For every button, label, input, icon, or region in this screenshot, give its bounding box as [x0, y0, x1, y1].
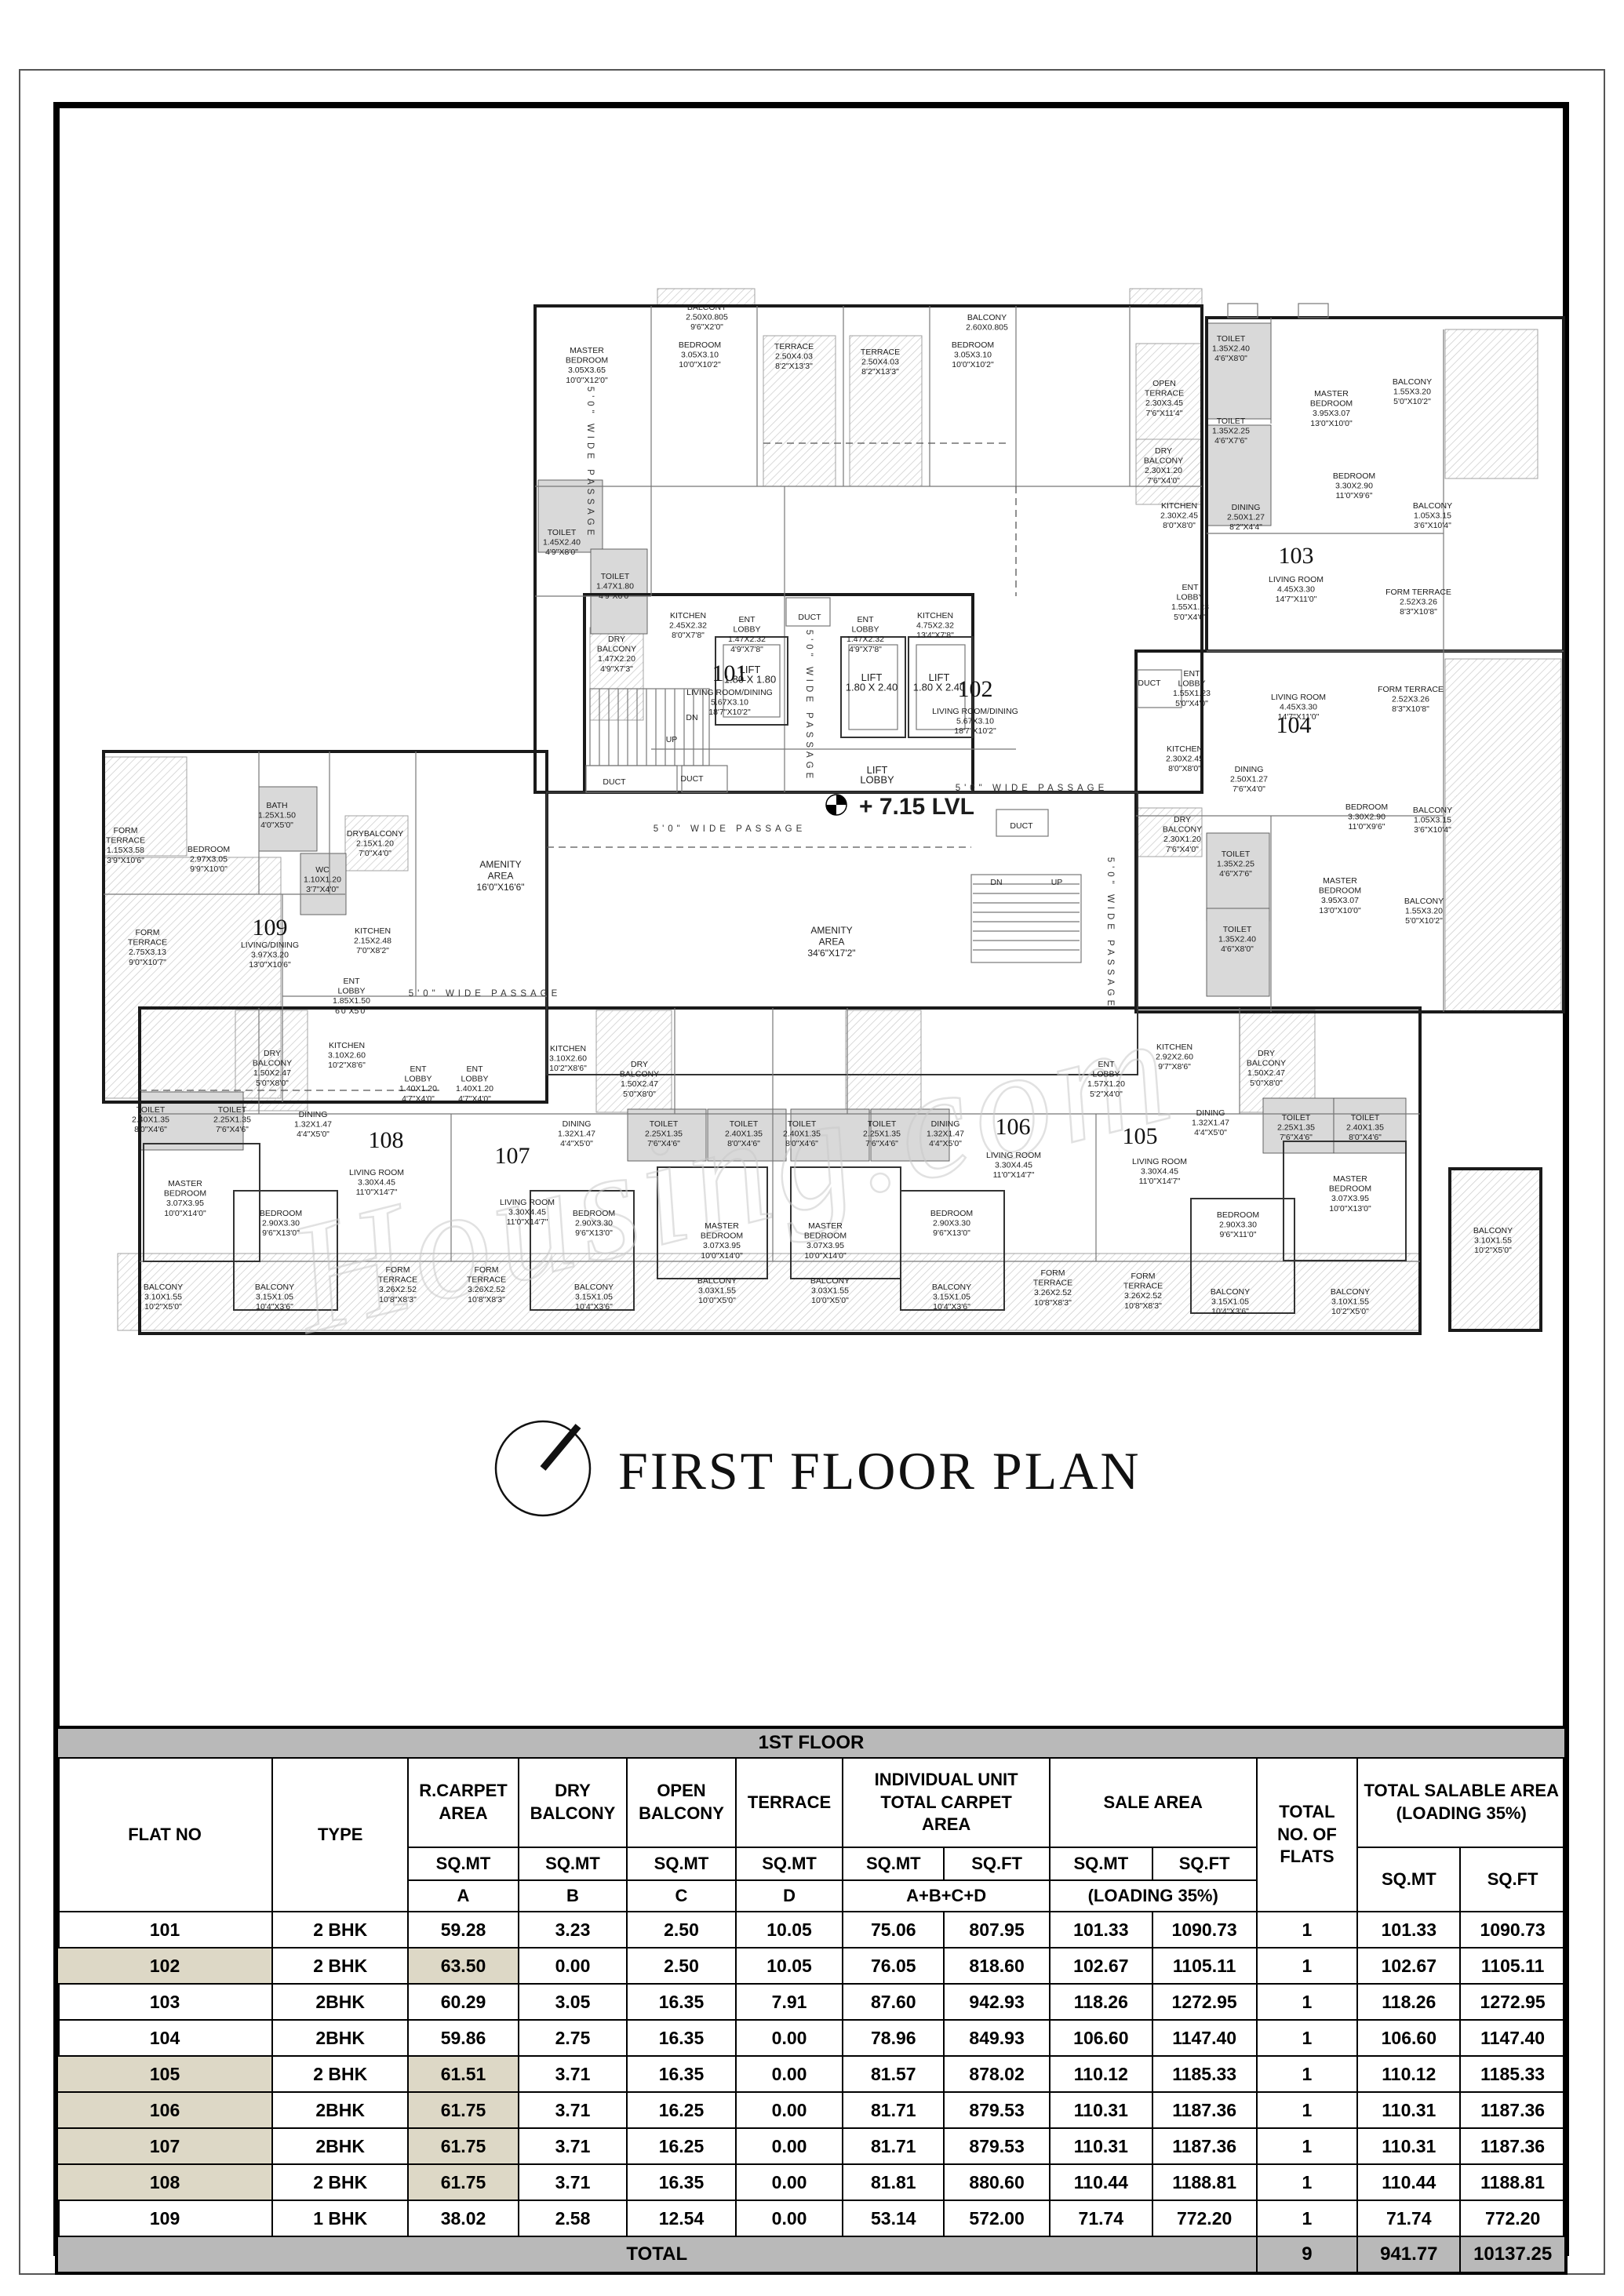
- value-cell: 0.00: [736, 2128, 843, 2164]
- total-label: TOTAL: [56, 2236, 1257, 2273]
- value-cell: 2.50: [627, 1948, 736, 1984]
- table-row-flat-109: 1091 BHK38.022.5812.540.0053.14572.0071.…: [56, 2200, 1566, 2236]
- type-cell: 2 BHK: [272, 2056, 408, 2092]
- level-label: + 7.15 LVL: [859, 794, 974, 820]
- unit-label: SQ.MT: [736, 1847, 843, 1880]
- room-label: BALCONY3.15X1.0510'4"X3'6": [574, 1283, 614, 1312]
- unit-label: SQ.FT: [1460, 1847, 1566, 1912]
- unit-label: SQ.MT: [627, 1847, 736, 1880]
- room-label: 5'0" WIDE PASSAGE: [1105, 857, 1115, 1010]
- room-label: BEDROOM3.30X2.9011'0"X9'6": [1333, 471, 1375, 500]
- unit-label: SQ.FT: [944, 1847, 1050, 1880]
- col-total-flats: TOTAL NO. OF FLATS: [1257, 1758, 1358, 1912]
- room-label: BEDROOM3.30X2.9011'0"X9'6": [1345, 802, 1388, 831]
- room-label: DINING1.32X1.474'4"X5'0": [1192, 1108, 1229, 1137]
- unit-107-label: 107: [495, 1143, 530, 1169]
- room-label: MASTERBEDROOM3.07X3.9510'0"X13'0": [1329, 1174, 1371, 1213]
- room-label: DUCT: [1138, 679, 1161, 688]
- unit-106-label: 106: [996, 1114, 1031, 1140]
- value-cell: 2.58: [519, 2200, 628, 2236]
- type-cell: 2BHK: [272, 1984, 408, 2020]
- room-label: BEDROOM2.90X3.309'6"X13'0": [930, 1209, 973, 1238]
- room-label: 5'0" WIDE PASSAGE: [654, 824, 807, 834]
- value-cell: 16.35: [627, 2164, 736, 2200]
- value-cell: 3.71: [519, 2092, 628, 2128]
- flat-no-cell: 103: [56, 1984, 272, 2020]
- value-cell: 1: [1257, 1912, 1358, 1948]
- unit-105-label: 105: [1123, 1123, 1158, 1149]
- room-label: ENTLOBBY1.40X1.204'7"X4'0": [456, 1064, 493, 1104]
- value-cell: 1090.73: [1152, 1912, 1257, 1948]
- room-label: LIVING ROOM3.30X4.4511'0"X14'7": [1132, 1157, 1187, 1186]
- room-label: BALCONY1.05X3.153'6"X10'4": [1413, 501, 1452, 530]
- room-label: DINING2.50X1.277'6"X4'0": [1230, 765, 1268, 794]
- value-cell: 572.00: [944, 2200, 1050, 2236]
- room-label: BALCONY3.15X1.0510'4"X3'6": [255, 1283, 294, 1312]
- floor-title-row: 1ST FLOOR: [56, 1727, 1566, 1758]
- value-cell: 102.67: [1050, 1948, 1152, 1984]
- room-label: ENTLOBBY1.47X2.324'9"X7'8": [728, 615, 766, 654]
- type-cell: 2BHK: [272, 2020, 408, 2056]
- unit-label: SQ.MT: [519, 1847, 628, 1880]
- value-cell: 110.31: [1050, 2092, 1152, 2128]
- room-label: BALCONY3.10X1.5510'2"X5'0": [144, 1283, 183, 1312]
- value-cell: 87.60: [843, 1984, 944, 2020]
- table-row-flat-104: 1042BHK59.862.7516.350.0078.96849.93106.…: [56, 2020, 1566, 2056]
- room-label: KITCHEN2.30X2.458'0"X8'0": [1160, 501, 1198, 530]
- room-label: 5'0" WIDE PASSAGE: [804, 630, 814, 783]
- flat-no-cell: 104: [56, 2020, 272, 2056]
- value-cell: 0.00: [736, 2200, 843, 2236]
- type-cell: 1 BHK: [272, 2200, 408, 2236]
- value-cell: 772.20: [1152, 2200, 1257, 2236]
- total-sqft: 10137.25: [1460, 2236, 1566, 2273]
- lift-2-label: LIFT1.80 X 2.40: [846, 671, 898, 693]
- room-label: TOILET2.40X1.358'0"X4'6": [783, 1119, 821, 1148]
- value-cell: 1105.11: [1152, 1948, 1257, 1984]
- value-cell: 1: [1257, 2092, 1358, 2128]
- value-cell: 2.50: [627, 1912, 736, 1948]
- room-label: KITCHEN3.10X2.6010'2"X8'6": [549, 1044, 587, 1073]
- room-label: LIVING ROOM/DINING5.67X3.1018'7"X10'2": [686, 688, 773, 717]
- col-type: TYPE: [272, 1758, 408, 1912]
- table-row-flat-107: 1072BHK61.753.7116.250.0081.71879.53110.…: [56, 2128, 1566, 2164]
- room-label: BEDROOM2.90X3.309'6"X11'0": [1217, 1210, 1259, 1239]
- value-cell: 3.05: [519, 1984, 628, 2020]
- room-label: BEDROOM3.05X3.1010'0"X10'2": [952, 340, 994, 369]
- value-cell: 0.00: [736, 2020, 843, 2056]
- value-cell: 118.26: [1050, 1984, 1152, 2020]
- table-row-flat-106: 1062BHK61.753.7116.250.0081.71879.53110.…: [56, 2092, 1566, 2128]
- value-cell: 1: [1257, 2020, 1358, 2056]
- letter-b: B: [519, 1880, 628, 1912]
- value-cell: 849.93: [944, 2020, 1050, 2056]
- room-label: TOILET2.40X1.358'0"X4'6": [1346, 1113, 1384, 1142]
- value-cell: 110.31: [1357, 2092, 1460, 2128]
- room-label: DN: [686, 713, 697, 722]
- value-cell: 1272.95: [1152, 1984, 1257, 2020]
- value-cell: 0.00: [736, 2056, 843, 2092]
- floor-plan-sheet: Housing.com 101102103104105106107108109B…: [0, 0, 1624, 2296]
- value-cell: 16.25: [627, 2092, 736, 2128]
- value-cell: 10.05: [736, 1948, 843, 1984]
- room-label: DUCT: [680, 774, 704, 784]
- room-label: 5'0" WIDE PASSAGE: [409, 989, 562, 999]
- value-cell: 16.35: [627, 1984, 736, 2020]
- room-label: DINING2.50X1.278'2"X4'4": [1227, 503, 1265, 532]
- value-cell: 61.75: [408, 2092, 518, 2128]
- room-label: DINING1.32X1.474'4"X5'0": [927, 1119, 964, 1148]
- flat-no-cell: 106: [56, 2092, 272, 2128]
- room-label: TOILET1.47X1.804'9"X6'0": [596, 572, 634, 601]
- page-title: FIRST FLOOR PLAN: [618, 1441, 1141, 1501]
- value-cell: 61.75: [408, 2164, 518, 2200]
- value-cell: 1187.36: [1460, 2092, 1566, 2128]
- value-cell: 110.44: [1050, 2164, 1152, 2200]
- room-label: BALCONY2.60X0.805: [966, 313, 1008, 333]
- floor-title: 1ST FLOOR: [56, 1727, 1566, 1758]
- value-cell: 61.51: [408, 2056, 518, 2092]
- unit-label: SQ.MT: [1357, 1847, 1460, 1912]
- value-cell: 81.81: [843, 2164, 944, 2200]
- col-open-balcony: OPEN BALCONY: [627, 1758, 736, 1847]
- value-cell: 16.25: [627, 2128, 736, 2164]
- value-cell: 818.60: [944, 1948, 1050, 1984]
- room-label: LIVING ROOM4.45X3.3014'7"X11'0": [1271, 693, 1326, 722]
- value-cell: 879.53: [944, 2128, 1050, 2164]
- lift-3-label: LIFT1.80 X 2.40: [913, 671, 966, 693]
- value-cell: 81.71: [843, 2128, 944, 2164]
- room-label: BALCONY2.50X0.8059'6"X2'0": [686, 303, 728, 332]
- unit-label: SQ.MT: [408, 1847, 518, 1880]
- letter-d: D: [736, 1880, 843, 1912]
- title-block: FIRST FLOOR PLAN: [496, 1421, 1141, 1516]
- room-label: LIVING ROOM4.45X3.3014'7"X11'0": [1269, 575, 1324, 604]
- col-individual-carpet: INDIVIDUAL UNIT TOTAL CARPET AREA: [843, 1758, 1050, 1847]
- room-label: KITCHEN2.45X2.328'0"X7'8": [669, 611, 707, 640]
- type-cell: 2BHK: [272, 2092, 408, 2128]
- room-label: DINING1.32X1.474'4"X5'0": [558, 1119, 595, 1148]
- room-label: 5'0" WIDE PASSAGE: [956, 784, 1109, 793]
- unit-103-label: 103: [1279, 543, 1314, 569]
- room-label: KITCHEN3.10X2.6010'2"X8'6": [328, 1041, 366, 1070]
- value-cell: 102.67: [1357, 1948, 1460, 1984]
- value-cell: 1185.33: [1460, 2056, 1566, 2092]
- col-sale-area: SALE AREA: [1050, 1758, 1257, 1847]
- room-label: BALCONY3.15X1.0510'4"X3'6": [932, 1283, 971, 1312]
- room-label: TOILET2.25X1.357'6"X4'6": [1277, 1113, 1315, 1142]
- room-label: TOILET2.25X1.357'6"X4'6": [863, 1119, 901, 1148]
- unit-109-label: 109: [253, 915, 288, 941]
- col-dry-balcony: DRY BALCONY: [519, 1758, 628, 1847]
- col-r-carpet: R.CARPET AREA: [408, 1758, 518, 1847]
- value-cell: 16.35: [627, 2020, 736, 2056]
- total-row: TOTAL9941.7710137.25: [56, 2236, 1566, 2273]
- room-label: TOILET1.35X2.404'6"X8'0": [1212, 334, 1250, 363]
- room-label: TOILET1.35X2.404'6"X8'0": [1218, 925, 1256, 954]
- letter-sum: A+B+C+D: [843, 1880, 1050, 1912]
- table-row-flat-103: 1032BHK60.293.0516.357.9187.60942.93118.…: [56, 1984, 1566, 2020]
- room-label: KITCHEN2.92X2.609'7"X8'6": [1156, 1042, 1193, 1072]
- area-table: 1ST FLOOR FLAT NO TYPE R.CARPET AREA DRY…: [55, 1726, 1568, 2275]
- table-row-flat-108: 1082 BHK61.753.7116.350.0081.81880.60110…: [56, 2164, 1566, 2200]
- value-cell: 71.74: [1050, 2200, 1152, 2236]
- value-cell: 3.71: [519, 2056, 628, 2092]
- value-cell: 71.74: [1357, 2200, 1460, 2236]
- room-label: MASTERBEDROOM3.07X3.9510'0"X14'0": [804, 1221, 847, 1261]
- value-cell: 10.05: [736, 1912, 843, 1948]
- col-total-salable: TOTAL SALABLE AREA (LOADING 35%): [1357, 1758, 1566, 1847]
- value-cell: 1147.40: [1152, 2020, 1257, 2056]
- room-label: DUCT: [798, 613, 821, 622]
- value-cell: 78.96: [843, 2020, 944, 2056]
- room-label: KITCHEN2.15X2.487'0"X8'2": [354, 926, 391, 955]
- north-needle-icon: [543, 1426, 578, 1468]
- value-cell: 61.75: [408, 2128, 518, 2164]
- table-row-flat-105: 1052 BHK61.513.7116.350.0081.57878.02110…: [56, 2056, 1566, 2092]
- value-cell: 76.05: [843, 1948, 944, 1984]
- value-cell: 12.54: [627, 2200, 736, 2236]
- value-cell: 1105.11: [1460, 1948, 1566, 1984]
- value-cell: 0.00: [736, 2092, 843, 2128]
- room-label: BALCONY3.10X1.5510'2"X5'0": [1473, 1226, 1513, 1255]
- value-cell: 3.71: [519, 2128, 628, 2164]
- room-label: ENTLOBBY1.47X2.324'9"X7'8": [847, 615, 884, 654]
- room-label: MASTERBEDROOM3.05X3.6510'0"X12'0": [566, 346, 608, 385]
- room-label: BEDROOM2.97X3.059'9"X10'0": [188, 845, 230, 874]
- unit-108-label: 108: [369, 1127, 404, 1153]
- room-label: LIVING ROOM/DINING5.67X3.1018'7"X10'2": [932, 707, 1018, 736]
- value-cell: 1: [1257, 2128, 1358, 2164]
- room-label: DUCT: [603, 777, 626, 787]
- col-flat-no: FLAT NO: [56, 1758, 272, 1912]
- unit-label: SQ.FT: [1152, 1847, 1257, 1880]
- room-label: FORM TERRACE2.52X3.268'3"X10'8": [1378, 685, 1444, 714]
- room-label: ENTLOBBY1.85X1.506'0"X5'0": [333, 977, 370, 1016]
- room-label: TOILET1.35X2.254'6"X7'6": [1217, 850, 1254, 879]
- value-cell: 110.12: [1357, 2056, 1460, 2092]
- amenity-area-1-label: AMENITYAREA16'0"X16'6": [476, 859, 524, 893]
- value-cell: 101.33: [1050, 1912, 1152, 1948]
- room-label: MASTERBEDROOM3.95X3.0713'0"X10'0": [1310, 389, 1353, 428]
- room-label: TOILET2.25X1.357'6"X4'6": [213, 1105, 251, 1134]
- value-cell: 75.06: [843, 1912, 944, 1948]
- type-cell: 2 BHK: [272, 1912, 408, 1948]
- room-label: DUCT: [1010, 821, 1033, 831]
- room-label: TOILET1.45X2.404'9"X8'0": [543, 528, 581, 557]
- value-cell: 1: [1257, 2056, 1358, 2092]
- value-cell: 3.23: [519, 1912, 628, 1948]
- total-flats: 9: [1257, 2236, 1358, 2273]
- value-cell: 101.33: [1357, 1912, 1460, 1948]
- value-cell: 106.60: [1050, 2020, 1152, 2056]
- room-label: TOILET2.40X1.358'0"X4'6": [132, 1105, 169, 1134]
- loading-note: (LOADING 35%): [1050, 1880, 1257, 1912]
- value-cell: 110.31: [1357, 2128, 1460, 2164]
- value-cell: 38.02: [408, 2200, 518, 2236]
- room-label: KITCHEN4.75X2.3213'4"X7'8": [916, 611, 954, 640]
- flat-no-cell: 102: [56, 1948, 272, 1984]
- type-cell: 2 BHK: [272, 1948, 408, 1984]
- value-cell: 60.29: [408, 1984, 518, 2020]
- value-cell: 879.53: [944, 2092, 1050, 2128]
- type-cell: 2BHK: [272, 2128, 408, 2164]
- value-cell: 16.35: [627, 2056, 736, 2092]
- value-cell: 81.71: [843, 2092, 944, 2128]
- value-cell: 1272.95: [1460, 1984, 1566, 2020]
- value-cell: 106.60: [1357, 2020, 1460, 2056]
- letter-c: C: [627, 1880, 736, 1912]
- room-label: 5'0" WIDE PASSAGE: [585, 387, 595, 540]
- value-cell: 1147.40: [1460, 2020, 1566, 2056]
- value-cell: 1090.73: [1460, 1912, 1566, 1948]
- letter-a: A: [408, 1880, 518, 1912]
- flat-no-cell: 101: [56, 1912, 272, 1948]
- room-label: BALCONY1.05X3.153'6"X10'4": [1413, 806, 1452, 835]
- value-cell: 0.00: [736, 2164, 843, 2200]
- room-label: TERRACE2.50X4.038'2"X13'3": [774, 342, 814, 371]
- value-cell: 2.75: [519, 2020, 628, 2056]
- value-cell: 118.26: [1357, 1984, 1460, 2020]
- room-label: BALCONY3.03X1.5510'0"X5'0": [810, 1276, 850, 1305]
- room-label: ENTLOBBY1.55X1.235'0"X4'0": [1173, 669, 1211, 708]
- table-row-flat-102: 1022 BHK63.500.002.5010.0576.05818.60102…: [56, 1948, 1566, 1984]
- value-cell: 878.02: [944, 2056, 1050, 2092]
- value-cell: 1: [1257, 1948, 1358, 1984]
- value-cell: 1188.81: [1152, 2164, 1257, 2200]
- value-cell: 110.44: [1357, 2164, 1460, 2200]
- flat-no-cell: 107: [56, 2128, 272, 2164]
- room-label: BEDROOM3.05X3.1010'0"X10'2": [679, 340, 721, 369]
- room-label: TOILET2.40X1.358'0"X4'6": [725, 1119, 763, 1148]
- value-cell: 59.28: [408, 1912, 518, 1948]
- value-cell: 110.31: [1050, 2128, 1152, 2164]
- room-label: MASTERBEDROOM3.95X3.0713'0"X10'0": [1319, 876, 1361, 915]
- value-cell: 1: [1257, 1984, 1358, 2020]
- room-label: KITCHEN2.30X2.458'0"X8'0": [1166, 744, 1203, 773]
- room-label: BALCONY3.03X1.5510'0"X5'0": [697, 1276, 737, 1305]
- room-label: BALCONY1.55X3.205'0"X10'2": [1393, 377, 1432, 406]
- room-label: BALCONY3.15X1.0510'4"X3'6": [1211, 1287, 1250, 1316]
- value-cell: 110.12: [1050, 2056, 1152, 2092]
- value-cell: 1: [1257, 2200, 1358, 2236]
- value-cell: 807.95: [944, 1912, 1050, 1948]
- room-label: ENTLOBBY1.40X1.204'7"X4'0": [399, 1064, 437, 1104]
- value-cell: 1188.81: [1460, 2164, 1566, 2200]
- value-cell: 0.00: [519, 1948, 628, 1984]
- value-cell: 7.91: [736, 1984, 843, 2020]
- unit-label: SQ.MT: [843, 1847, 944, 1880]
- table-row-flat-101: 1012 BHK59.283.232.5010.0575.06807.95101…: [56, 1912, 1566, 1948]
- flat-no-cell: 108: [56, 2164, 272, 2200]
- room-label: DN: [990, 878, 1002, 887]
- room-label: DINING1.32X1.474'4"X5'0": [294, 1110, 332, 1139]
- room-label: FORM TERRACE2.52X3.268'3"X10'8": [1385, 588, 1451, 617]
- value-cell: 81.57: [843, 2056, 944, 2092]
- value-cell: 1: [1257, 2164, 1358, 2200]
- room-label: TOILET2.25X1.357'6"X4'6": [645, 1119, 683, 1148]
- value-cell: 1185.33: [1152, 2056, 1257, 2092]
- amenity-area-2-label: AMENITYAREA34'6"X17'2": [807, 925, 855, 959]
- room-label: MASTERBEDROOM3.07X3.9510'0"X14'0": [164, 1179, 206, 1218]
- value-cell: 1187.36: [1152, 2128, 1257, 2164]
- value-cell: 59.86: [408, 2020, 518, 2056]
- unit-label: SQ.MT: [1050, 1847, 1152, 1880]
- room-label: BALCONY1.55X3.205'0"X10'2": [1404, 897, 1444, 926]
- value-cell: 3.71: [519, 2164, 628, 2200]
- value-cell: 880.60: [944, 2164, 1050, 2200]
- header-row: FLAT NO TYPE R.CARPET AREA DRY BALCONY O…: [56, 1758, 1566, 1847]
- value-cell: 53.14: [843, 2200, 944, 2236]
- value-cell: 942.93: [944, 1984, 1050, 2020]
- value-cell: 1187.36: [1460, 2128, 1566, 2164]
- room-label: BEDROOM2.90X3.309'6"X13'0": [260, 1209, 302, 1238]
- room-label: TOILET1.35X2.254'6"X7'6": [1212, 417, 1250, 446]
- total-sqmt: 941.77: [1357, 2236, 1460, 2273]
- room-label: BEDROOM2.90X3.309'6"X13'0": [573, 1209, 615, 1238]
- value-cell: 63.50: [408, 1948, 518, 1984]
- value-cell: 1187.36: [1152, 2092, 1257, 2128]
- type-cell: 2 BHK: [272, 2164, 408, 2200]
- room-label: UP: [1051, 878, 1063, 887]
- lift-lobby-label: LIFTLOBBY: [860, 764, 894, 786]
- table-body: 1012 BHK59.283.232.5010.0575.06807.95101…: [56, 1912, 1566, 2273]
- flat-no-cell: 109: [56, 2200, 272, 2236]
- room-label: BALCONY3.10X1.5510'2"X5'0": [1331, 1287, 1370, 1316]
- room-label: UP: [666, 735, 678, 744]
- flat-no-cell: 105: [56, 2056, 272, 2092]
- col-terrace: TERRACE: [736, 1758, 843, 1847]
- value-cell: 772.20: [1460, 2200, 1566, 2236]
- room-label: MASTERBEDROOM3.07X3.9510'0"X14'0": [701, 1221, 743, 1261]
- room-label: TERRACE2.50X4.038'2"X13'3": [861, 347, 900, 377]
